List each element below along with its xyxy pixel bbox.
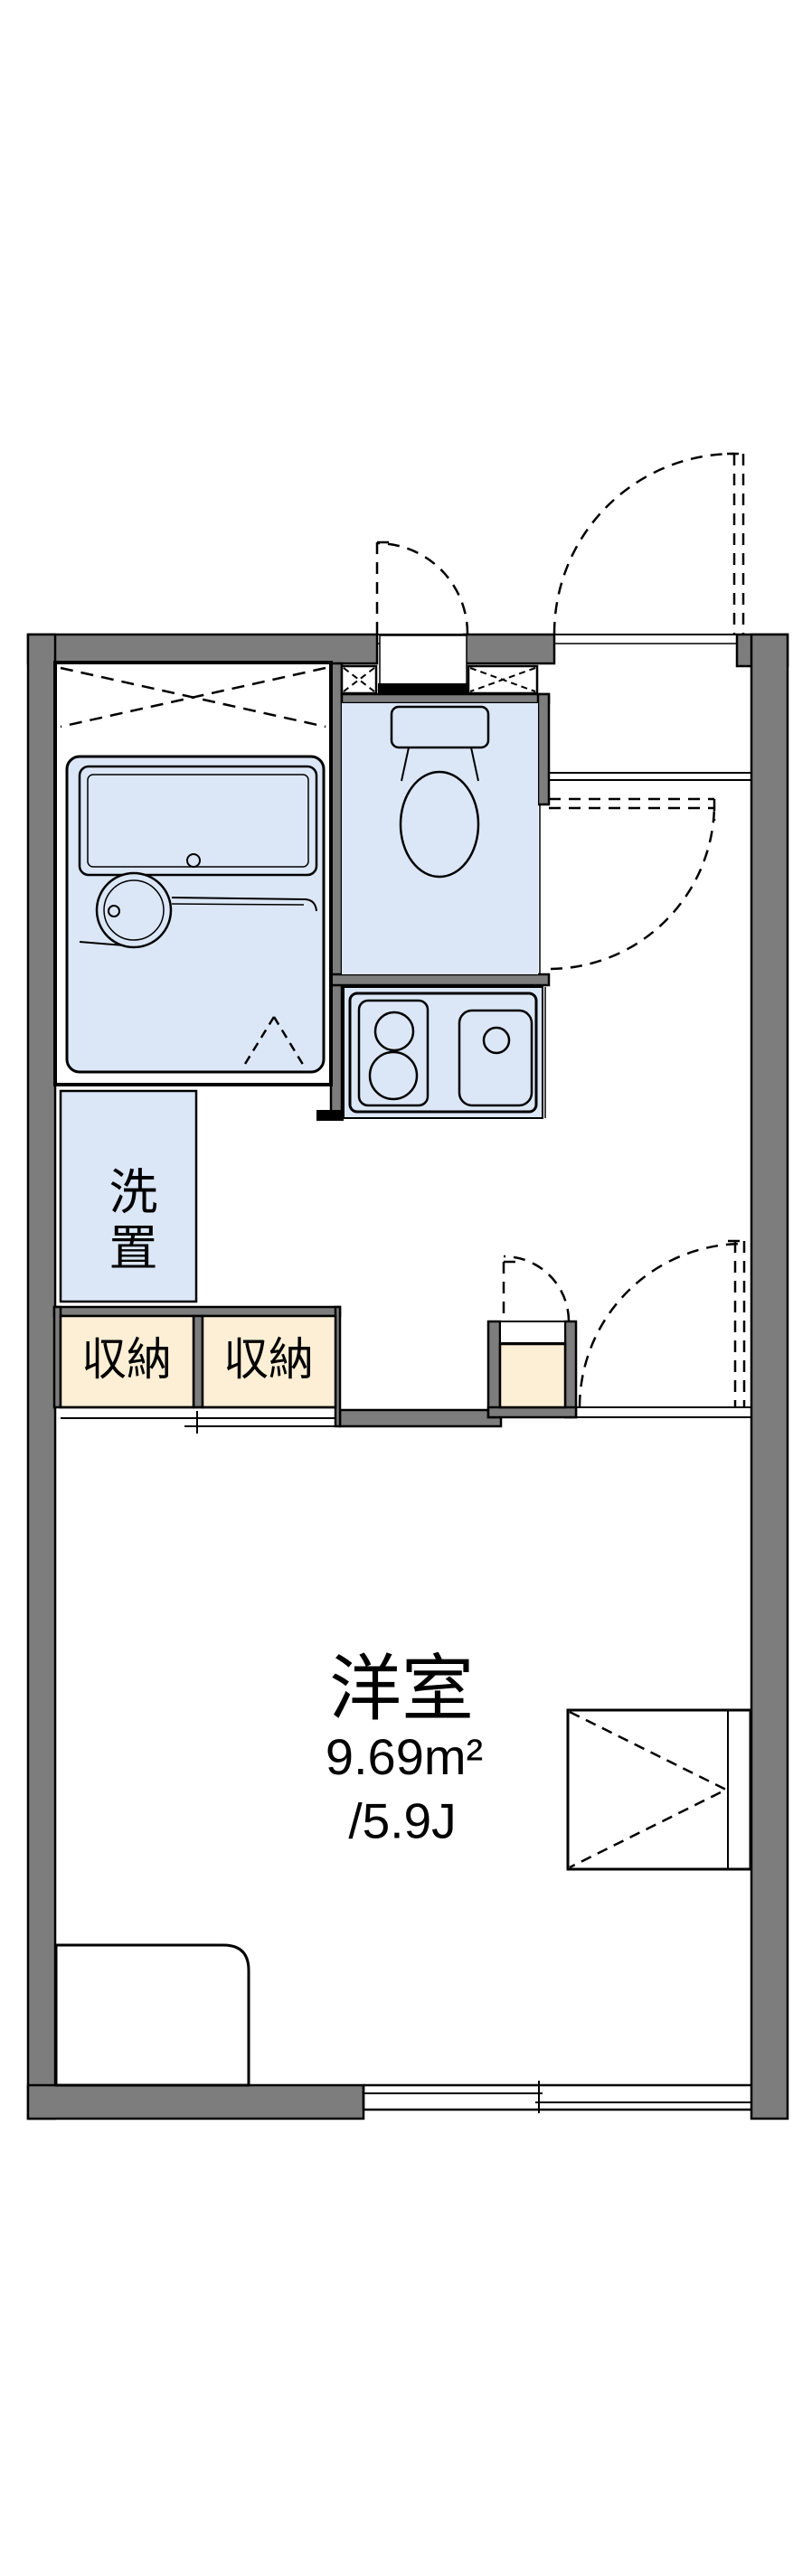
- small-exterior-door-icon: [377, 542, 467, 634]
- toilet-bowl-icon: [401, 772, 478, 877]
- wall-toilet-top: [342, 694, 549, 703]
- storage-right-label: 収納: [223, 1337, 314, 1382]
- main-room-area: 9.69m²: [326, 1732, 483, 1782]
- kitchen-sink-icon: [459, 1011, 532, 1105]
- wall-top-middle: [464, 635, 554, 663]
- floor-plan-drawing: [0, 0, 812, 2576]
- small-closet-door-icon: [504, 1256, 569, 1321]
- wall-left: [28, 635, 55, 2119]
- wall-corridor-bottom: [340, 1410, 501, 1426]
- hall-door-icon: [549, 799, 714, 969]
- main-room-label: 洋室: [329, 1653, 474, 1725]
- main-room-door-icon: [580, 1241, 744, 1407]
- room-door-threshold: [576, 1407, 751, 1417]
- main-room-tatami: /5.9J: [348, 1797, 456, 1847]
- small-closet-threshold: [500, 1321, 565, 1343]
- wall-toilet-bottom: [331, 974, 549, 985]
- bathtub-drain-icon: [187, 854, 200, 867]
- wall-toilet-right: [538, 694, 549, 804]
- entrance-recess-sill: [378, 683, 468, 693]
- storage-left-label: 収納: [81, 1337, 172, 1382]
- wall-bottom: [28, 2085, 364, 2119]
- floor-plan: 洗置 収納 収納 洋室 9.69m² /5.9J: [0, 0, 812, 2576]
- storage-sliding-doors-icon: [61, 1407, 335, 1434]
- laundry-label: 洗置: [104, 1166, 153, 1278]
- stove-burner-top-icon: [375, 1012, 413, 1050]
- small-closet-left: [488, 1321, 500, 1417]
- entrance-recess: [380, 635, 467, 685]
- washbasin-faucet-icon: [109, 906, 119, 917]
- stove-burner-bottom-icon: [370, 1052, 417, 1099]
- entrance-step-line: [549, 773, 751, 780]
- wall-cap-bath-corner: [316, 1110, 344, 1121]
- sliding-window-icon: [364, 2081, 751, 2113]
- wall-top-left: [28, 635, 377, 663]
- wall-right: [751, 635, 788, 2119]
- closet-frame-top: [54, 1307, 340, 1316]
- small-closet-box: [500, 1344, 565, 1407]
- desk-icon: [568, 1710, 751, 1869]
- small-closet-bottom: [488, 1407, 576, 1417]
- toilet-tank-icon: [392, 707, 488, 747]
- small-closet-right: [565, 1321, 576, 1417]
- entrance-door-icon: [554, 454, 743, 634]
- closet-frame-divider: [194, 1316, 203, 1407]
- bed-icon: [56, 1945, 249, 2085]
- sink-drain-icon: [484, 1028, 509, 1053]
